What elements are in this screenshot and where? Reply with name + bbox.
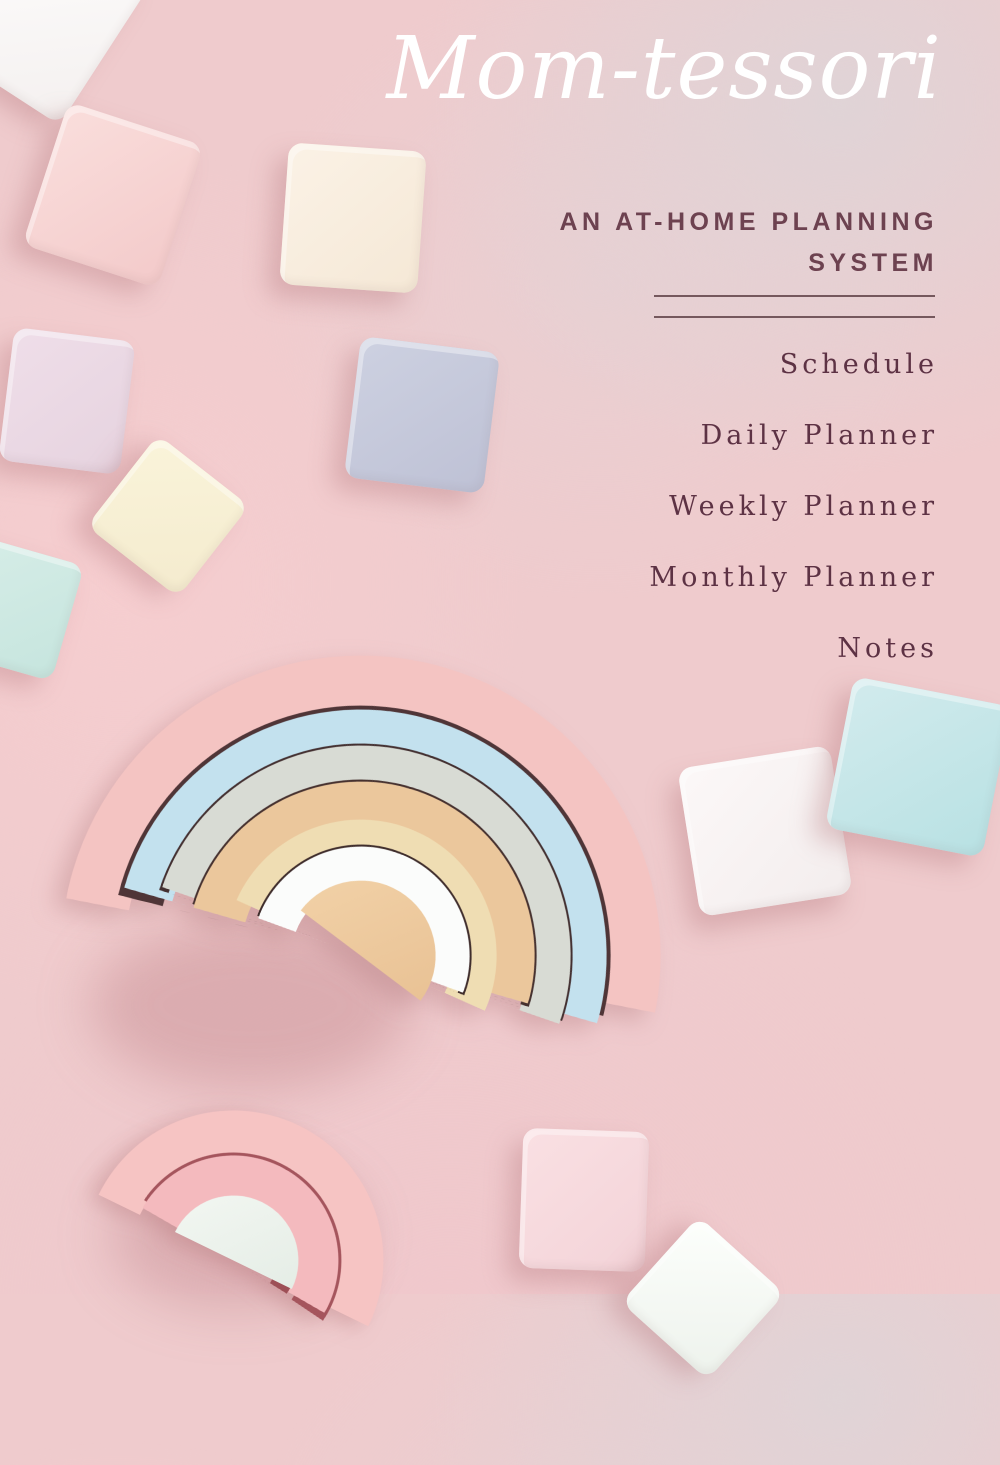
wooden-block-mint-left-edge xyxy=(0,535,84,682)
contents-item-schedule: Schedule xyxy=(780,349,938,380)
wooden-block-cream xyxy=(279,142,427,293)
wooden-block-white-bottom xyxy=(621,1216,785,1380)
contents-item-monthly-planner: Monthly Planner xyxy=(649,562,938,593)
contents-item-weekly-planner: Weekly Planner xyxy=(669,491,938,522)
book-subtitle: AN AT-HOME PLANNING SYSTEM xyxy=(546,202,938,283)
divider-line-top xyxy=(654,295,935,297)
rainbow-stacker-toy xyxy=(17,562,746,1164)
wooden-block-periwinkle xyxy=(344,336,500,494)
contents-item-notes: Notes xyxy=(837,633,938,664)
divider-line-bottom xyxy=(654,316,935,318)
book-cover: { "cover": { "title": "Mom-tessori", "su… xyxy=(0,0,1000,1294)
contents-list: Schedule Daily Planner Weekly Planner Mo… xyxy=(649,349,938,664)
wooden-block-aqua-right-edge xyxy=(825,676,1000,858)
wooden-block-lilac xyxy=(0,327,136,475)
contents-item-daily-planner: Daily Planner xyxy=(701,420,938,451)
book-title: Mom-tessori xyxy=(386,22,942,117)
wooden-block-pink xyxy=(22,102,203,289)
